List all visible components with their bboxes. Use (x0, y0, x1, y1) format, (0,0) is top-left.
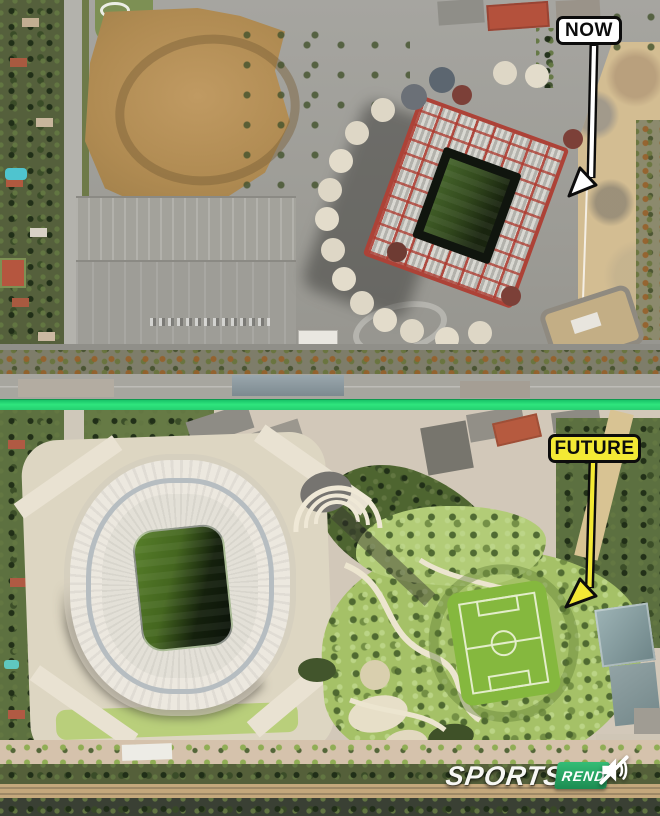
swimming-pool (5, 168, 27, 180)
parked-cars-row (150, 318, 270, 326)
park-plaza-circle (360, 660, 390, 690)
green-divider (0, 399, 660, 410)
park-north-lawn (356, 506, 546, 586)
now-label-text: NOW (565, 20, 613, 42)
rooftops-left-b (0, 410, 17, 419)
avenue-tree-row (0, 350, 660, 374)
parking-lot-upper (76, 196, 296, 262)
building-red-roof-top (486, 1, 550, 31)
now-label: NOW (556, 16, 622, 45)
building-row-right (460, 381, 530, 398)
swimming-pool-b (4, 660, 19, 669)
watermark: SPORTS REND (440, 752, 660, 800)
glass-building-1 (594, 603, 656, 668)
muted-speaker-icon[interactable] (596, 752, 632, 788)
building-gray-top-1 (437, 0, 485, 26)
rail-corridor (0, 798, 660, 816)
new-stadium-pitch (131, 523, 235, 654)
satellite-photo-now (0, 0, 660, 399)
trees-right-edge (636, 120, 660, 340)
corner-towers-red (0, 0, 20, 20)
building-row-left (18, 379, 114, 397)
white-canopy (122, 743, 173, 761)
long-building (232, 375, 344, 396)
residential-trees-left (0, 0, 66, 399)
post-image: NOW FUTURE SPORTS REND (0, 0, 660, 816)
sports-court (0, 258, 26, 288)
parking-lot-lower (76, 262, 296, 344)
brand-text: SPORTS (444, 761, 565, 792)
future-label-text: FUTURE (554, 438, 634, 460)
park-pond-dark-2 (298, 658, 336, 682)
future-label: FUTURE (548, 434, 641, 463)
city-tower-dark (420, 420, 474, 475)
